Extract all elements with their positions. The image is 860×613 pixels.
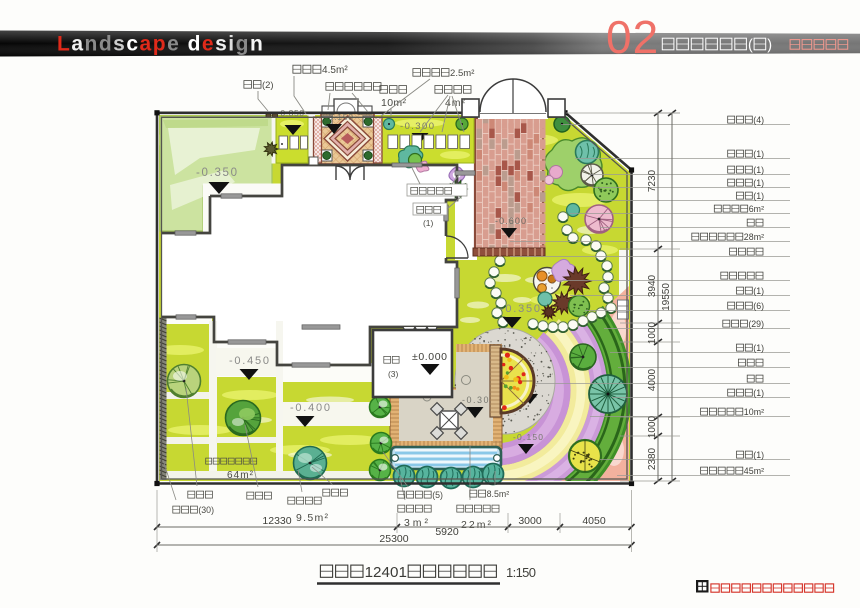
svg-text:(4): (4) — [753, 115, 764, 125]
svg-text:2380: 2380 — [647, 447, 658, 470]
svg-text:(1): (1) — [423, 218, 433, 228]
svg-text:25300: 25300 — [379, 533, 408, 545]
svg-text:(30): (30) — [198, 505, 214, 515]
svg-text:±0.000: ±0.000 — [412, 351, 447, 363]
svg-text:(1): (1) — [753, 165, 764, 175]
svg-text:22m²: 22m² — [461, 519, 492, 531]
svg-text:4.5m²: 4.5m² — [322, 65, 348, 76]
svg-text:7230: 7230 — [647, 169, 658, 192]
svg-text:(1): (1) — [753, 450, 764, 460]
svg-text:(1): (1) — [753, 178, 764, 188]
svg-text:(1): (1) — [753, 286, 764, 296]
svg-text:12401: 12401 — [365, 564, 407, 581]
svg-text:45m²: 45m² — [744, 466, 764, 476]
svg-text:(: ( — [748, 38, 753, 54]
svg-text:10m²: 10m² — [744, 407, 764, 417]
svg-text:3940: 3940 — [647, 274, 658, 297]
svg-text:(5): (5) — [432, 490, 443, 500]
svg-text:-0.450: -0.450 — [229, 355, 269, 367]
svg-text:): ) — [767, 38, 772, 54]
svg-text:28m²: 28m² — [744, 232, 764, 242]
svg-text:(1): (1) — [753, 149, 764, 159]
svg-text:-0.150: -0.150 — [513, 432, 543, 442]
svg-text:5920: 5920 — [435, 526, 459, 538]
svg-text:02: 02 — [606, 11, 659, 63]
svg-text:1000: 1000 — [647, 415, 658, 438]
svg-text:1000: 1000 — [647, 321, 658, 344]
svg-text:10m²: 10m² — [381, 97, 407, 109]
svg-text:4000: 4000 — [647, 368, 658, 391]
svg-text:(29): (29) — [748, 319, 764, 329]
svg-text:-0.350: -0.350 — [196, 167, 237, 179]
svg-text:12330: 12330 — [262, 515, 291, 527]
svg-text:-0.300: -0.300 — [400, 121, 434, 132]
svg-text:6m²: 6m² — [749, 204, 764, 214]
svg-text:(2): (2) — [262, 80, 274, 91]
svg-text:19550: 19550 — [661, 283, 672, 311]
svg-text:2.5m²: 2.5m² — [450, 68, 474, 79]
svg-text:(1): (1) — [753, 343, 764, 353]
svg-text:-0.400: -0.400 — [290, 402, 330, 414]
svg-text:9.5m²: 9.5m² — [296, 512, 329, 524]
svg-text:1:150: 1:150 — [506, 565, 536, 580]
svg-text:-0.600: -0.600 — [495, 216, 526, 226]
svg-text:Landscape design: Landscape design — [57, 33, 264, 56]
svg-text:8.5m²: 8.5m² — [487, 489, 510, 499]
svg-text:-0.350: -0.350 — [500, 303, 540, 315]
svg-text:(1): (1) — [753, 191, 764, 201]
svg-text:3000: 3000 — [518, 515, 542, 527]
svg-text:4050: 4050 — [582, 515, 606, 527]
svg-text:(6): (6) — [753, 301, 764, 311]
svg-text:(3): (3) — [388, 369, 398, 379]
svg-text:(1): (1) — [753, 388, 764, 398]
